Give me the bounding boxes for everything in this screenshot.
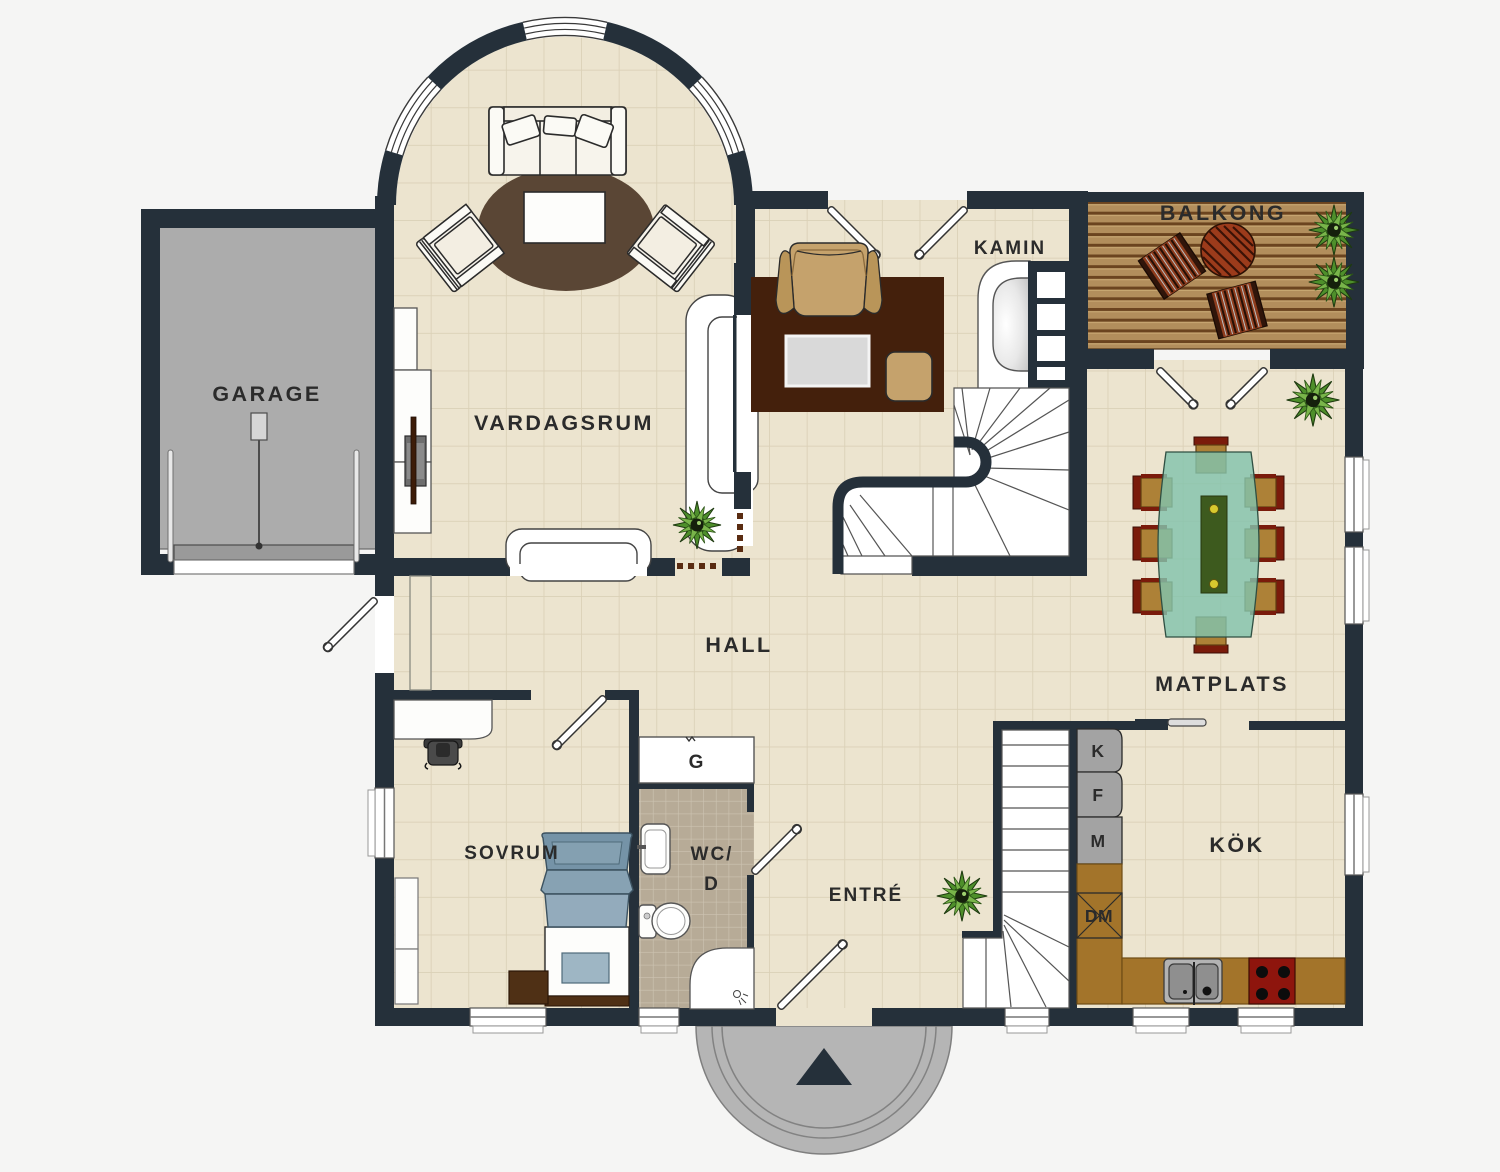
- svg-text:D: D: [704, 874, 720, 895]
- svg-text:K: K: [1091, 741, 1104, 761]
- svg-text:F: F: [1092, 785, 1103, 805]
- svg-text:SOVRUM: SOVRUM: [464, 843, 559, 864]
- svg-text:HALL: HALL: [705, 633, 772, 657]
- svg-text:ENTRÉ: ENTRÉ: [829, 884, 903, 906]
- svg-text:WC/: WC/: [691, 844, 734, 865]
- svg-text:M: M: [1090, 831, 1105, 851]
- svg-text:DM: DM: [1085, 906, 1113, 926]
- svg-text:KAMIN: KAMIN: [974, 238, 1046, 259]
- svg-text:GARAGE: GARAGE: [212, 382, 321, 406]
- svg-text:VARDAGSRUM: VARDAGSRUM: [474, 411, 654, 435]
- svg-text:BALKONG: BALKONG: [1160, 201, 1286, 225]
- svg-text:MATPLATS: MATPLATS: [1155, 672, 1289, 696]
- svg-text:KÖK: KÖK: [1209, 832, 1264, 857]
- svg-text:G: G: [689, 752, 706, 773]
